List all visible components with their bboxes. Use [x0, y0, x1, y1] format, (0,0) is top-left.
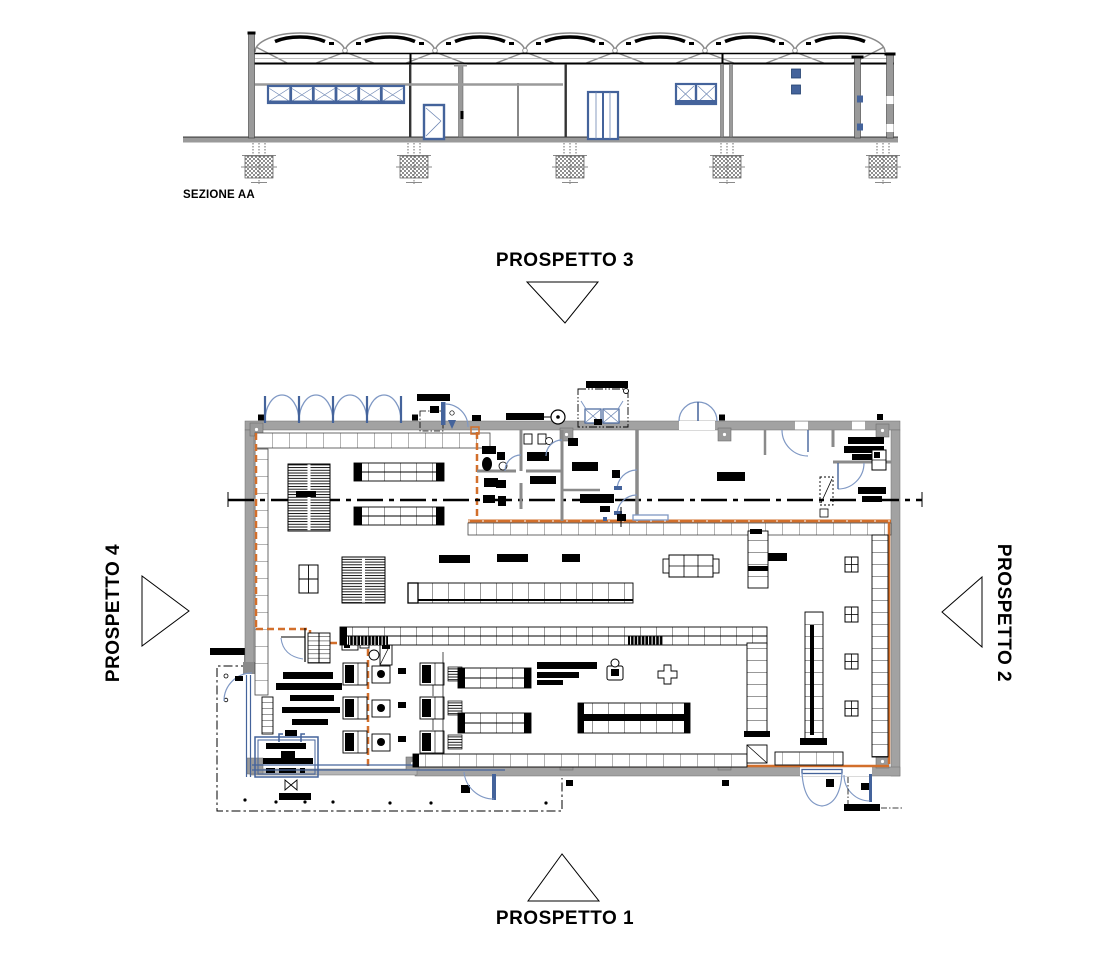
elevation-label-top: PROSPETTO 3 [430, 250, 700, 272]
section-drawing [170, 25, 910, 215]
elevation-label-right: PROSPETTO 2 [992, 544, 1014, 682]
hall-furniture-center [340, 529, 787, 767]
section-door-double [588, 92, 618, 139]
double-swing-door [679, 402, 717, 430]
section-door-single [424, 105, 464, 139]
roof-beam [249, 53, 894, 65]
clerestory-window-band [268, 86, 404, 104]
offices-top-right [717, 430, 891, 517]
reference-centerline [228, 492, 922, 507]
elevation-label-left: PROSPETTO 4 [103, 544, 125, 682]
section-label: SEZIONE AA [183, 189, 255, 201]
ground-line [183, 137, 898, 143]
prospetto-3-arrow [524, 280, 602, 326]
prospetto-1-arrow [524, 852, 602, 904]
elevation-label-bottom: PROSPETTO 1 [430, 908, 700, 930]
prospetto-4-arrow [140, 574, 192, 650]
x-braced-door [581, 401, 623, 425]
section-window-x [676, 84, 716, 104]
prospetto-2-arrow [940, 575, 985, 649]
drawing-canvas: SEZIONE AA PROSPETTO 3 PROSPETTO 1 PROSP… [0, 0, 1114, 971]
shed-roof [255, 33, 885, 64]
foundation-footings [241, 143, 901, 184]
floor-plan [200, 370, 930, 820]
section-wall-vents [792, 69, 864, 131]
